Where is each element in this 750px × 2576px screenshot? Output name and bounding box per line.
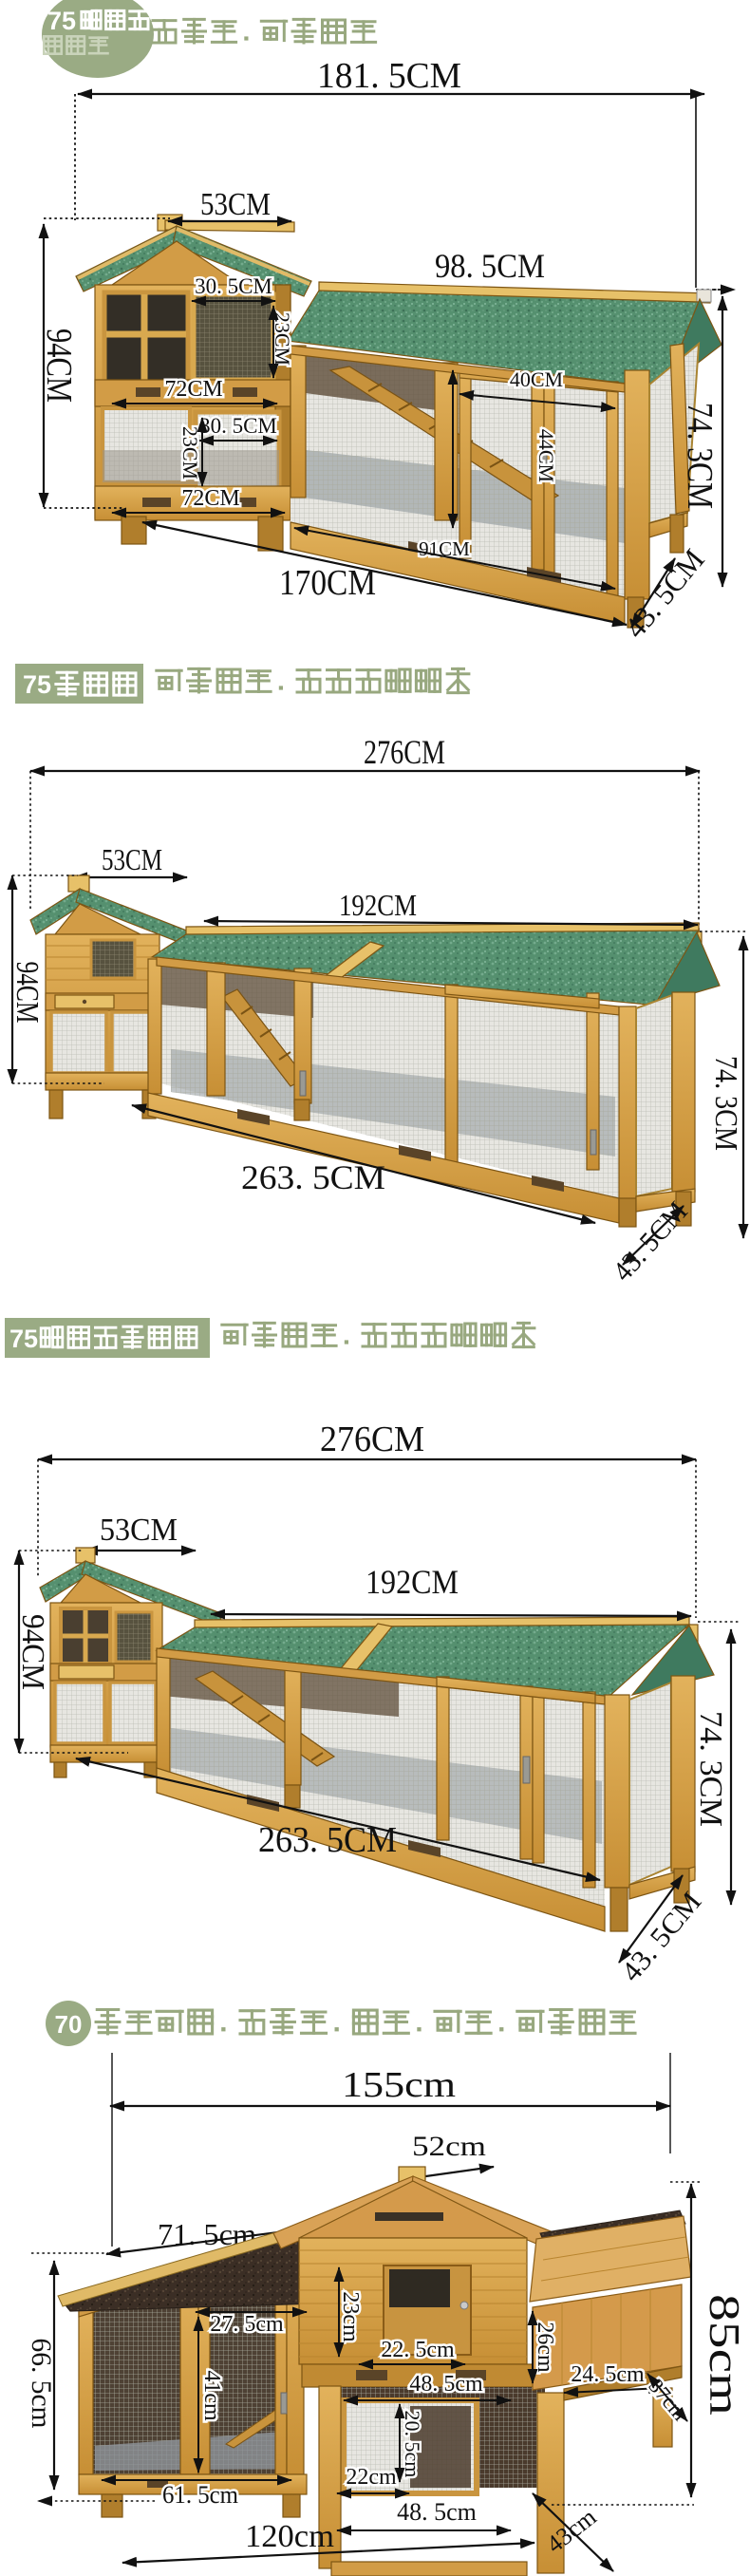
svg-text:30. 5CM: 30. 5CM <box>195 274 272 298</box>
svg-text:276CM: 276CM <box>364 733 445 771</box>
svg-text:48. 5cm: 48. 5cm <box>409 2372 483 2397</box>
svg-text:23cm: 23cm <box>338 2291 363 2342</box>
svg-text:66. 5cm: 66. 5cm <box>26 2339 57 2429</box>
svg-text:263. 5CM: 263. 5CM <box>258 1820 397 1860</box>
svg-text:94CM: 94CM <box>15 1614 50 1690</box>
svg-text:74. 3CM: 74. 3CM <box>693 1711 728 1827</box>
svg-text:53CM: 53CM <box>102 842 162 876</box>
svg-text:72CM: 72CM <box>181 486 239 511</box>
svg-text:70: 70 <box>55 2010 83 2039</box>
svg-text:181. 5CM: 181. 5CM <box>317 56 461 96</box>
svg-text:53CM: 53CM <box>200 187 271 222</box>
svg-text:75: 75 <box>47 7 76 35</box>
svg-text:24. 5cm: 24. 5cm <box>571 2362 645 2387</box>
svg-text:26cm: 26cm <box>533 2322 557 2373</box>
svg-text:27. 5cm: 27. 5cm <box>210 2312 284 2337</box>
svg-text:155cm: 155cm <box>342 2065 456 2105</box>
svg-text:52cm: 52cm <box>412 2131 486 2162</box>
svg-text:48. 5cm: 48. 5cm <box>397 2498 477 2526</box>
svg-text:23CM: 23CM <box>178 426 202 479</box>
svg-text:20. 5cm: 20. 5cm <box>401 2411 424 2478</box>
svg-text:74. 3CM: 74. 3CM <box>680 403 720 509</box>
svg-text:61. 5cm: 61. 5cm <box>162 2481 238 2509</box>
svg-text:192CM: 192CM <box>339 888 417 922</box>
svg-text:30. 5CM: 30. 5CM <box>199 414 277 438</box>
svg-text:43. 5CM: 43. 5CM <box>615 1886 707 1987</box>
svg-text:22cm: 22cm <box>346 2465 397 2490</box>
svg-text:120cm: 120cm <box>245 2519 334 2554</box>
svg-text:276CM: 276CM <box>320 1420 424 1459</box>
svg-text:85cm: 85cm <box>701 2294 749 2416</box>
svg-text:75: 75 <box>9 1325 38 1353</box>
svg-text:75: 75 <box>23 670 51 699</box>
svg-text:41cm: 41cm <box>199 2370 224 2421</box>
svg-text:22. 5cm: 22. 5cm <box>381 2338 455 2362</box>
svg-text:98. 5CM: 98. 5CM <box>435 247 545 285</box>
svg-text:94CM: 94CM <box>9 962 45 1024</box>
svg-text:94CM: 94CM <box>39 329 79 403</box>
svg-text:192CM: 192CM <box>366 1563 459 1601</box>
svg-text:74. 3CM: 74. 3CM <box>708 1056 743 1151</box>
svg-text:72CM: 72CM <box>164 377 222 402</box>
svg-text:53CM: 53CM <box>100 1513 178 1548</box>
svg-text:44CM: 44CM <box>534 429 558 482</box>
svg-text:40CM: 40CM <box>510 367 563 391</box>
